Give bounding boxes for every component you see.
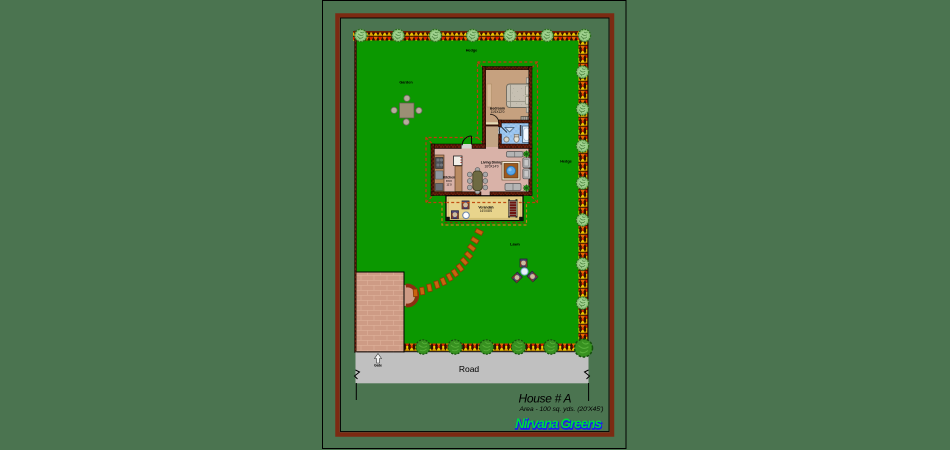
svg-text:Lawn: Lawn: [510, 243, 520, 247]
svg-text:Hedge: Hedge: [560, 160, 572, 164]
svg-text:Area - 100 sq. yds. (20'X45'): Area - 100 sq. yds. (20'X45'): [519, 406, 604, 413]
svg-text:11'6X12'0: 11'6X12'0: [491, 110, 505, 114]
svg-text:House # A: House # A: [519, 392, 572, 406]
svg-text:Nirvana Greens: Nirvana Greens: [515, 416, 602, 431]
svg-text:Garden: Garden: [399, 81, 413, 85]
svg-text:16'0X8'0: 16'0X8'0: [480, 209, 492, 213]
svg-text:11'0: 11'0: [446, 183, 452, 187]
svg-text:Gate: Gate: [374, 364, 382, 368]
svg-text:Hedge: Hedge: [466, 49, 478, 53]
svg-text:Road: Road: [459, 364, 480, 374]
svg-text:16'0X14'0: 16'0X14'0: [485, 164, 499, 168]
